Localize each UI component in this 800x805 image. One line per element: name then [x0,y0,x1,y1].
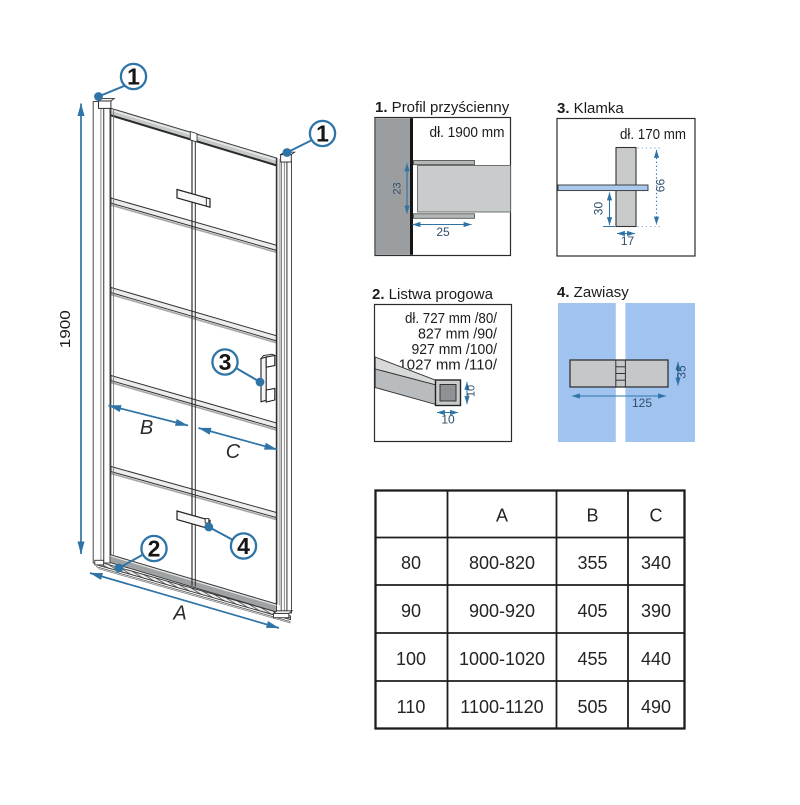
svg-text:30: 30 [592,202,606,216]
svg-text:C: C [650,506,663,526]
svg-text:3: 3 [219,349,232,375]
svg-text:66: 66 [654,179,668,193]
svg-text:17: 17 [621,234,635,248]
svg-text:25: 25 [436,225,450,239]
svg-text:dł. 727 mm /80/: dł. 727 mm /80/ [405,310,498,327]
svg-text:390: 390 [641,601,671,621]
svg-text:10: 10 [466,385,478,397]
svg-text:927 mm /100/: 927 mm /100/ [412,341,498,358]
svg-text:2. Listwa progowa: 2. Listwa progowa [372,286,494,303]
svg-text:1. Profil przyścienny: 1. Profil przyścienny [375,99,510,116]
svg-text:2: 2 [148,536,161,562]
svg-text:A: A [172,603,186,625]
svg-text:C: C [226,441,241,463]
svg-text:3. Klamka: 3. Klamka [557,100,624,117]
svg-text:355: 355 [577,553,607,573]
svg-text:35: 35 [675,365,689,379]
svg-text:100: 100 [396,649,426,669]
svg-text:90: 90 [401,601,421,621]
svg-text:1100-1120: 1100-1120 [460,697,543,717]
svg-text:B: B [586,506,598,526]
svg-text:B: B [140,417,153,439]
svg-text:405: 405 [577,601,607,621]
svg-text:490: 490 [641,697,671,717]
svg-text:1: 1 [316,121,329,147]
svg-text:800-820: 800-820 [469,553,535,573]
svg-text:125: 125 [632,396,652,410]
svg-text:23: 23 [392,182,404,194]
svg-text:1900: 1900 [57,310,74,348]
svg-text:80: 80 [401,553,421,573]
svg-text:dł. 1900 mm: dł. 1900 mm [430,124,505,141]
svg-text:505: 505 [577,697,607,717]
svg-text:900-920: 900-920 [469,601,535,621]
svg-text:1000-1020: 1000-1020 [459,649,545,669]
svg-text:dł. 170 mm: dł. 170 mm [620,126,686,143]
svg-text:340: 340 [641,553,671,573]
svg-text:110: 110 [397,697,426,717]
svg-text:10: 10 [441,413,455,427]
svg-text:4: 4 [237,533,250,559]
svg-text:4. Zawiasy: 4. Zawiasy [557,284,629,301]
svg-text:A: A [496,506,508,526]
svg-text:1: 1 [127,64,140,90]
svg-text:1027 mm /110/: 1027 mm /110/ [399,357,498,374]
svg-text:455: 455 [577,649,607,669]
svg-text:440: 440 [641,649,671,669]
svg-text:827 mm /90/: 827 mm /90/ [418,326,498,343]
